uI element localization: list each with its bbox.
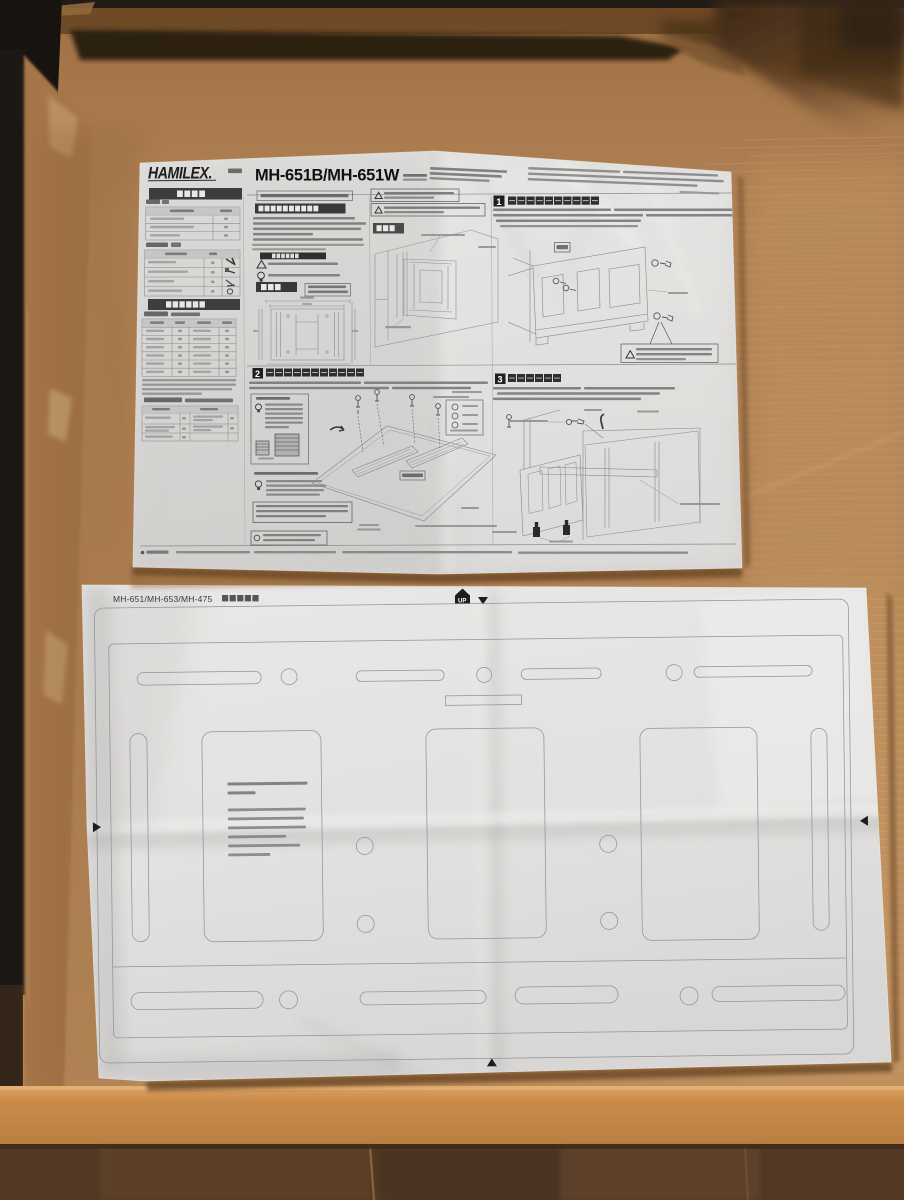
svg-text:MH-651B/MH-651W: MH-651B/MH-651W (255, 167, 400, 185)
svg-text:3: 3 (498, 375, 503, 385)
svg-text:MH-651/MH-653/MH-475: MH-651/MH-653/MH-475 (113, 594, 212, 604)
svg-text:1: 1 (496, 197, 502, 208)
svg-text:2: 2 (255, 369, 260, 379)
svg-text:HAMILEX.: HAMILEX. (148, 165, 212, 183)
